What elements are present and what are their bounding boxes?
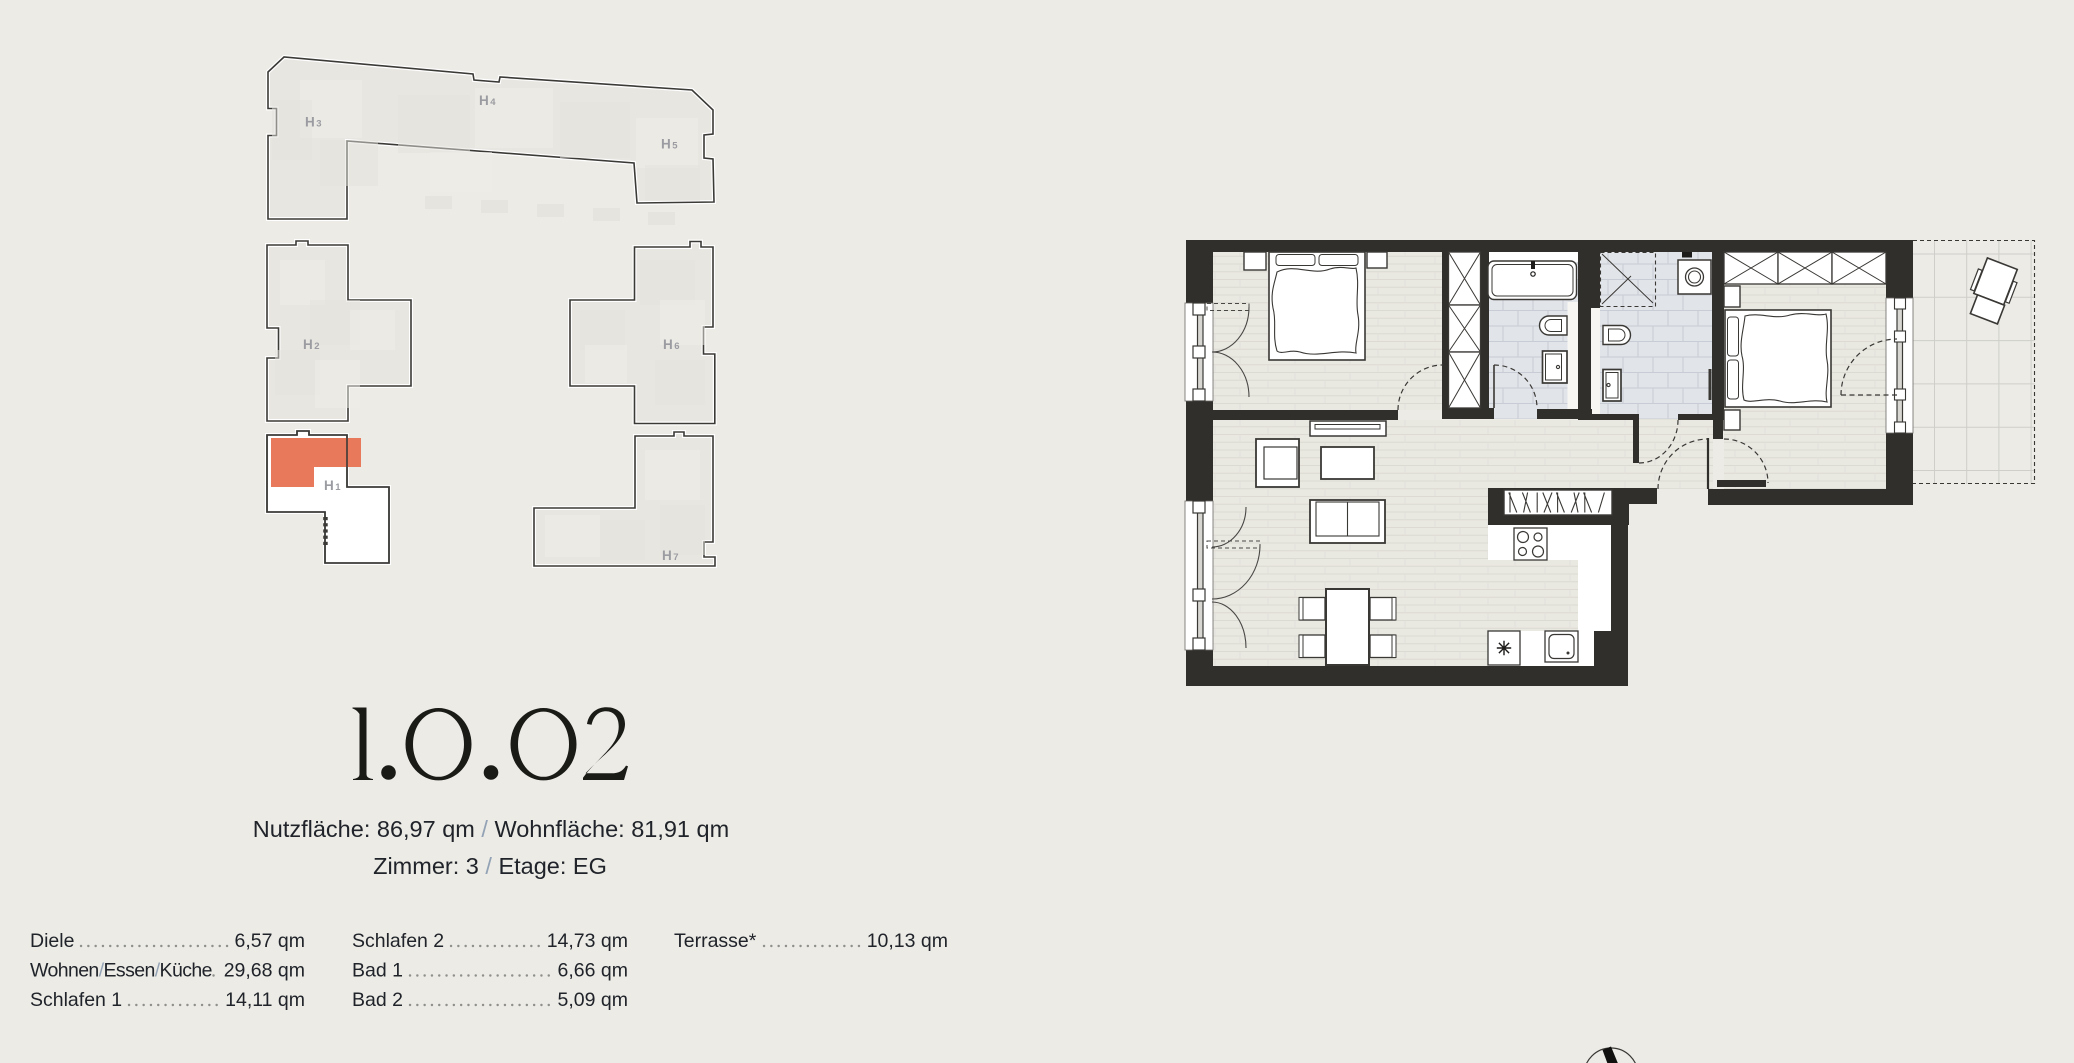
svg-text:14,11 qm: 14,11 qm xyxy=(225,989,305,1011)
svg-text:29,68 qm: 29,68 qm xyxy=(224,960,305,982)
svg-text:Zimmer: 3 / Etage: EG: Zimmer: 3 / Etage: EG xyxy=(373,853,607,879)
svg-text:Terrasse*: Terrasse* xyxy=(674,930,757,952)
svg-text:Diele: Diele xyxy=(30,930,74,952)
svg-text:Nutzfläche: 86,97 qm / Wohnflä: Nutzfläche: 86,97 qm / Wohnfläche: 81,91… xyxy=(253,816,729,842)
svg-text:Schlafen 2: Schlafen 2 xyxy=(352,930,444,952)
svg-text:10,13 qm: 10,13 qm xyxy=(867,930,948,952)
svg-text:6,57 qm: 6,57 qm xyxy=(235,930,305,952)
svg-text:Wohnen/Essen/Küche: Wohnen/Essen/Küche xyxy=(30,960,212,982)
svg-text:14,73 qm: 14,73 qm xyxy=(547,930,628,952)
svg-text:Schlafen 1: Schlafen 1 xyxy=(30,989,122,1011)
svg-text:Bad 2: Bad 2 xyxy=(352,989,403,1011)
svg-text:Bad 1: Bad 1 xyxy=(352,960,403,982)
svg-text:5,09 qm: 5,09 qm xyxy=(558,989,628,1011)
svg-text:6,66 qm: 6,66 qm xyxy=(558,960,628,982)
